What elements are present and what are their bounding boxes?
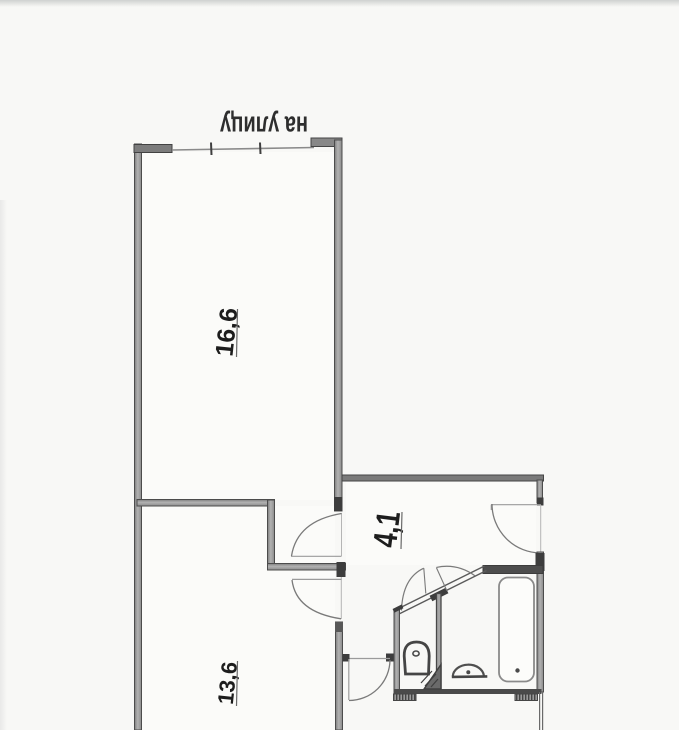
svg-text:на улицу: на улицу — [220, 110, 308, 141]
svg-text:16,6: 16,6 — [211, 306, 244, 357]
